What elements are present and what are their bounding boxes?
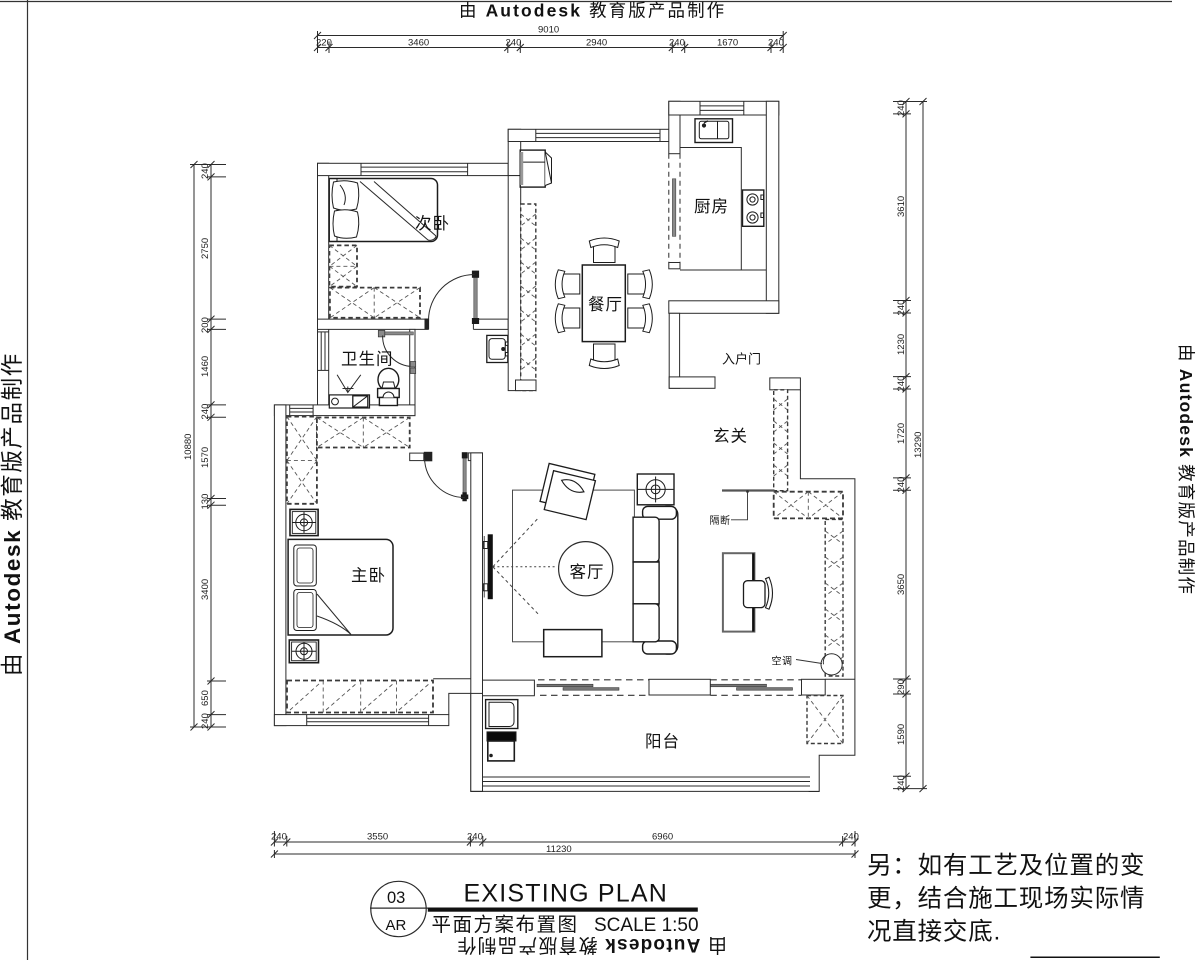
svg-text:240: 240 [200, 404, 211, 420]
svg-text:由 Autodesk 教育版产品制作: 由 Autodesk 教育版产品制作 [0, 352, 25, 676]
svg-text:SCALE 1:50: SCALE 1:50 [594, 915, 699, 936]
svg-text:11230: 11230 [546, 844, 572, 855]
svg-text:1670: 1670 [717, 38, 738, 49]
svg-text:240: 240 [896, 477, 907, 493]
svg-text:240: 240 [200, 163, 211, 179]
svg-text:240: 240 [896, 100, 907, 116]
svg-text:由 Autodesk 教育版产品制作: 由 Autodesk 教育版产品制作 [1176, 344, 1196, 595]
svg-text:由 Autodesk 教育版产品制作: 由 Autodesk 教育版产品制作 [459, 1, 726, 21]
svg-text:次卧: 次卧 [415, 214, 450, 233]
svg-text:200: 200 [200, 317, 211, 333]
svg-text:130: 130 [200, 494, 211, 510]
svg-text:1720: 1720 [896, 423, 907, 444]
svg-text:240: 240 [271, 832, 287, 843]
svg-text:6960: 6960 [652, 832, 673, 843]
svg-text:平面方案布置图: 平面方案布置图 [432, 914, 579, 936]
svg-text:况直接交底.: 况直接交底. [867, 918, 1001, 946]
svg-text:13290: 13290 [913, 432, 924, 458]
svg-text:另：如有工艺及位置的变: 另：如有工艺及位置的变 [867, 852, 1145, 880]
svg-text:更，结合施工现场实际情: 更，结合施工现场实际情 [867, 885, 1145, 913]
svg-text:240: 240 [506, 38, 522, 49]
svg-text:AR: AR [386, 917, 407, 934]
svg-text:240: 240 [843, 832, 859, 843]
svg-text:由 Autodesk 教育版产品制作: 由 Autodesk 教育版产品制作 [456, 934, 727, 956]
svg-text:3460: 3460 [408, 38, 429, 49]
svg-text:240: 240 [896, 376, 907, 392]
svg-text:1590: 1590 [896, 724, 907, 745]
svg-text:3610: 3610 [896, 196, 907, 217]
svg-text:240: 240 [200, 713, 211, 729]
svg-text:220: 220 [316, 38, 332, 49]
svg-text:240: 240 [768, 38, 784, 49]
svg-text:1570: 1570 [200, 447, 211, 468]
svg-text:1460: 1460 [200, 356, 211, 377]
svg-text:9010: 9010 [538, 25, 559, 36]
svg-text:3650: 3650 [896, 574, 907, 595]
svg-text:3400: 3400 [200, 579, 211, 600]
svg-text:10880: 10880 [183, 434, 194, 460]
svg-text:2750: 2750 [200, 238, 211, 259]
svg-text:入户门: 入户门 [722, 352, 761, 367]
svg-text:650: 650 [200, 690, 211, 706]
svg-text:厨房: 厨房 [694, 197, 729, 216]
svg-text:主卧: 主卧 [351, 566, 386, 585]
svg-text:1230: 1230 [896, 334, 907, 355]
svg-text:阳台: 阳台 [645, 732, 680, 751]
svg-text:EXISTING PLAN: EXISTING PLAN [464, 880, 669, 908]
svg-text:240: 240 [467, 832, 483, 843]
svg-text:2940: 2940 [586, 38, 607, 49]
svg-text:3550: 3550 [367, 832, 388, 843]
svg-text:隔断: 隔断 [710, 514, 731, 527]
svg-text:240: 240 [896, 775, 907, 791]
svg-text:03: 03 [387, 889, 405, 907]
svg-text:餐厅: 餐厅 [588, 295, 623, 314]
svg-text:玄关: 玄关 [713, 427, 748, 446]
svg-text:290: 290 [896, 679, 907, 695]
svg-text:卫生间: 卫生间 [341, 350, 394, 369]
svg-text:客厅: 客厅 [570, 563, 605, 582]
svg-text:240: 240 [669, 38, 685, 49]
svg-text:240: 240 [896, 300, 907, 316]
svg-text:空调: 空调 [772, 655, 793, 668]
